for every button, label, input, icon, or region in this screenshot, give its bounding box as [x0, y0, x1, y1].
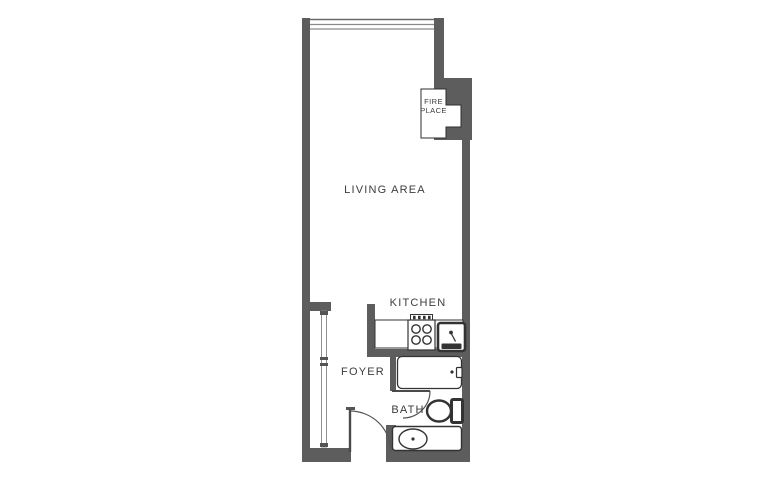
- foyer-label: FOYER: [323, 366, 403, 378]
- floor-plan: LIVING AREA KITCHEN FOYER BATH FIRE PLAC…: [0, 0, 768, 480]
- wall-right-upper: [434, 18, 444, 80]
- walls: [302, 18, 472, 462]
- fireplace-label-line1: FIRE: [419, 97, 448, 106]
- stove: [408, 315, 435, 351]
- fireplace-label: FIRE PLACE: [419, 97, 448, 115]
- bathtub: [398, 357, 463, 389]
- living-area-label: LIVING AREA: [325, 184, 445, 196]
- wall-left: [302, 18, 310, 462]
- kitchen-label: KITCHEN: [373, 297, 463, 309]
- wall-bottom-left: [302, 448, 351, 462]
- fireplace-label-line2: PLACE: [419, 106, 448, 115]
- closet-top-stub: [302, 302, 331, 311]
- window: [310, 20, 434, 30]
- kitchen-sink: [438, 323, 465, 351]
- closet-door: [320, 311, 328, 447]
- bath-label: BATH: [378, 404, 438, 416]
- vanity-sink: [393, 427, 462, 451]
